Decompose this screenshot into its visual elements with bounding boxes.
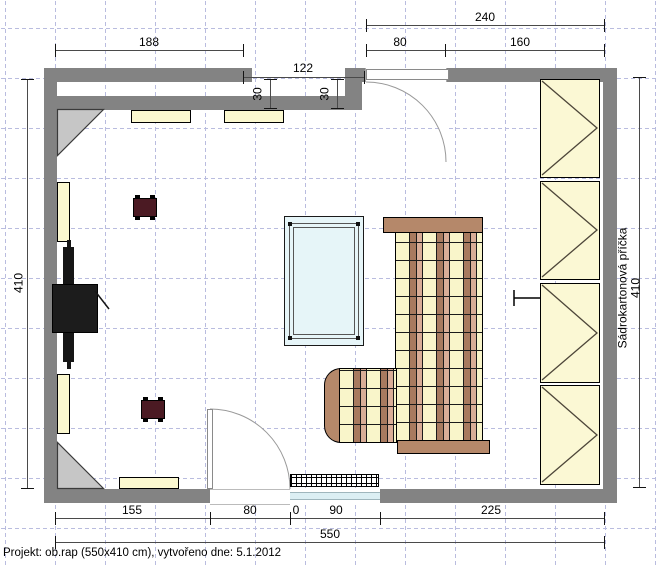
dim-line-122 (243, 77, 364, 78)
dim-tick (55, 512, 56, 525)
door-leaf-top[interactable] (366, 69, 449, 80)
dim-line-30-left (270, 79, 271, 108)
wall-shelf-left-2[interactable] (57, 374, 70, 434)
table-corner-dot (288, 336, 292, 340)
glass-table-icon[interactable] (284, 216, 364, 346)
dim-label-410-right: 410 (630, 278, 643, 298)
keyboard-stand-top (63, 247, 74, 287)
speaker-body (133, 198, 157, 217)
dim-tick (604, 536, 605, 549)
dim-tick (264, 108, 277, 109)
wardrobe-icon-1[interactable] (540, 79, 600, 178)
floorplan-canvas: 240 188 80 160 122 30 30 410 Sádrokarton… (0, 0, 657, 567)
dim-label-122: 122 (293, 62, 313, 75)
keyboard-stand-tip-bottom (67, 360, 71, 369)
table-corner-dot (356, 222, 360, 226)
dim-tick (364, 71, 365, 84)
wardrobe-icon-4[interactable] (540, 385, 600, 485)
bed-headboard (383, 217, 483, 233)
dim-label-550: 550 (320, 528, 340, 541)
wall-lamp-icon[interactable] (510, 289, 542, 307)
door-swing-bottom[interactable] (209, 408, 291, 490)
dim-line-bottom-chain (55, 518, 604, 519)
door-swing-top[interactable] (365, 81, 447, 163)
dim-tick (243, 71, 244, 84)
keyboard-stand-tip-top (67, 240, 71, 249)
keyboard-stand-bottom (63, 333, 74, 362)
dim-label-80-bottom: 80 (243, 504, 256, 517)
dim-tick (21, 79, 34, 80)
dim-tick (366, 19, 367, 32)
door-leaf-bottom[interactable] (207, 409, 213, 489)
project-info: Projekt: ob.rap (550x410 cm), vytvořeno … (3, 547, 281, 559)
dim-label-155: 155 (122, 504, 142, 517)
dim-line-188 (55, 50, 243, 51)
dim-tick (604, 512, 605, 525)
dim-label-30-right: 30 (319, 87, 332, 100)
speaker-body (141, 400, 165, 419)
dim-label-30-left: 30 (252, 87, 265, 100)
radiator-icon[interactable] (290, 474, 379, 487)
wall-top-outer[interactable] (44, 68, 252, 82)
bed-icon[interactable] (395, 232, 483, 441)
wall-shelf-top-1[interactable] (131, 110, 191, 123)
table-corner-dot (356, 336, 360, 340)
speaker-icon-2[interactable] (141, 397, 165, 422)
dim-label-0: 0 (293, 504, 300, 517)
dim-label-240: 240 (475, 11, 495, 24)
wardrobe-icon-2[interactable] (540, 181, 600, 280)
dim-tick (604, 44, 605, 57)
bed-footboard (397, 440, 490, 454)
dim-label-225: 225 (481, 504, 501, 517)
dim-tick (604, 19, 605, 32)
table-frame-inner (293, 227, 355, 335)
wall-top-inner[interactable] (57, 96, 362, 110)
wall-recess-post[interactable] (345, 82, 362, 96)
dim-label-160: 160 (510, 36, 530, 49)
dim-tick (331, 79, 344, 80)
dim-line-410-left (27, 79, 28, 488)
dim-tick (210, 512, 211, 525)
dim-tick (55, 44, 56, 57)
corner-desk-top-left-icon[interactable] (57, 109, 105, 157)
dim-tick (445, 44, 446, 57)
music-stand-line (94, 290, 114, 314)
dim-label-80-top: 80 (393, 36, 406, 49)
dim-line-240 (366, 25, 604, 26)
dim-label-90: 90 (329, 504, 342, 517)
window-icon[interactable] (290, 489, 380, 503)
chaise-icon[interactable] (339, 368, 397, 443)
corner-desk-bottom-left-icon[interactable] (57, 442, 105, 490)
dim-tick (331, 108, 344, 109)
dim-tick (633, 77, 646, 78)
speaker-icon-1[interactable] (133, 195, 157, 220)
keyboard-piano-icon[interactable] (52, 284, 98, 333)
dim-label-188: 188 (139, 36, 159, 49)
dim-line-80-top (366, 50, 604, 51)
table-corner-dot (288, 222, 292, 226)
dim-tick (264, 79, 277, 80)
dim-tick (366, 44, 367, 57)
wall-shelf-left-1[interactable] (57, 182, 70, 242)
dim-tick (633, 487, 646, 488)
wall-shelf-top-2[interactable] (224, 110, 284, 123)
dim-label-410-left: 410 (13, 273, 26, 293)
dim-line-30-right (337, 79, 338, 108)
dim-tick (21, 488, 34, 489)
table-frame (289, 223, 359, 339)
wall-shelf-bottom[interactable] (119, 477, 179, 489)
dim-line-550 (55, 542, 604, 543)
wardrobe-icon-3[interactable] (540, 283, 600, 383)
dim-tick (243, 44, 244, 57)
dim-tick (290, 512, 291, 525)
dim-tick (380, 512, 381, 525)
